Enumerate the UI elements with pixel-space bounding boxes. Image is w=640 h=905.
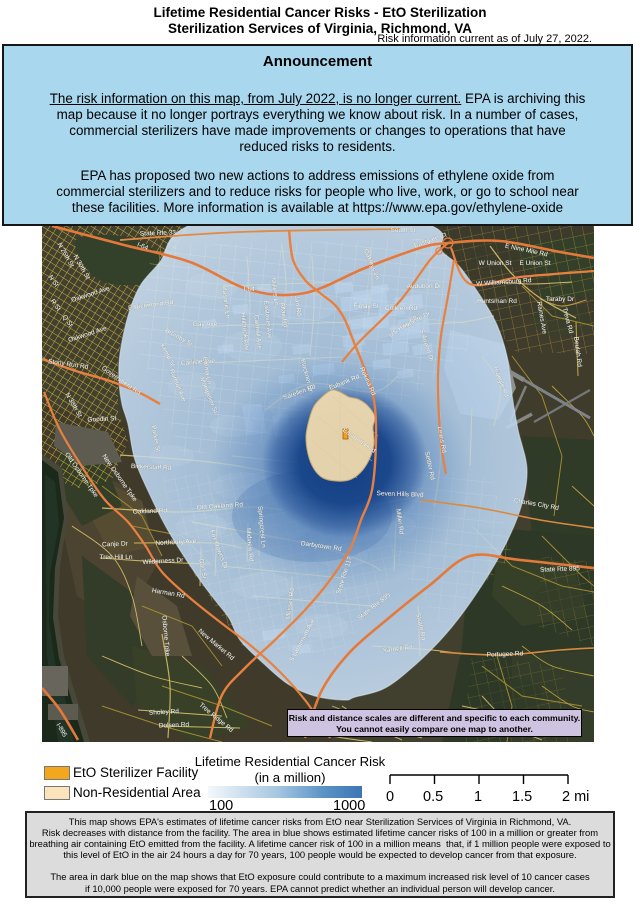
svg-text:W Union St: W Union St: [479, 260, 512, 267]
svg-text:Dolsen Rd: Dolsen Rd: [159, 721, 190, 729]
svg-text:I-64: I-64: [243, 286, 255, 294]
svg-text:State Rte 895: State Rte 895: [540, 565, 580, 573]
svg-text:Canje Dr: Canje Dr: [102, 541, 129, 549]
svg-text:Colleen Rd: Colleen Rd: [385, 305, 418, 312]
svg-text:Huntsman Rd: Huntsman Rd: [477, 298, 517, 305]
svg-text:Tree Hill Ln: Tree Hill Ln: [100, 554, 133, 561]
svg-text:State Rte 33: State Rte 33: [140, 229, 177, 237]
svg-text:E Union St: E Union St: [519, 260, 550, 267]
svg-text:Taraby Dr: Taraby Dr: [546, 296, 575, 303]
svg-text:Gay Ave: Gay Ave: [193, 321, 218, 328]
svg-text:Oakland Rd: Oakland Rd: [133, 507, 168, 515]
svg-text:Portugee Rd: Portugee Rd: [487, 650, 524, 658]
svg-text:South St: South St: [391, 227, 416, 234]
svg-text:Audubon Dr: Audubon Dr: [407, 283, 443, 290]
svg-text:Finlay St: Finlay St: [353, 303, 378, 310]
